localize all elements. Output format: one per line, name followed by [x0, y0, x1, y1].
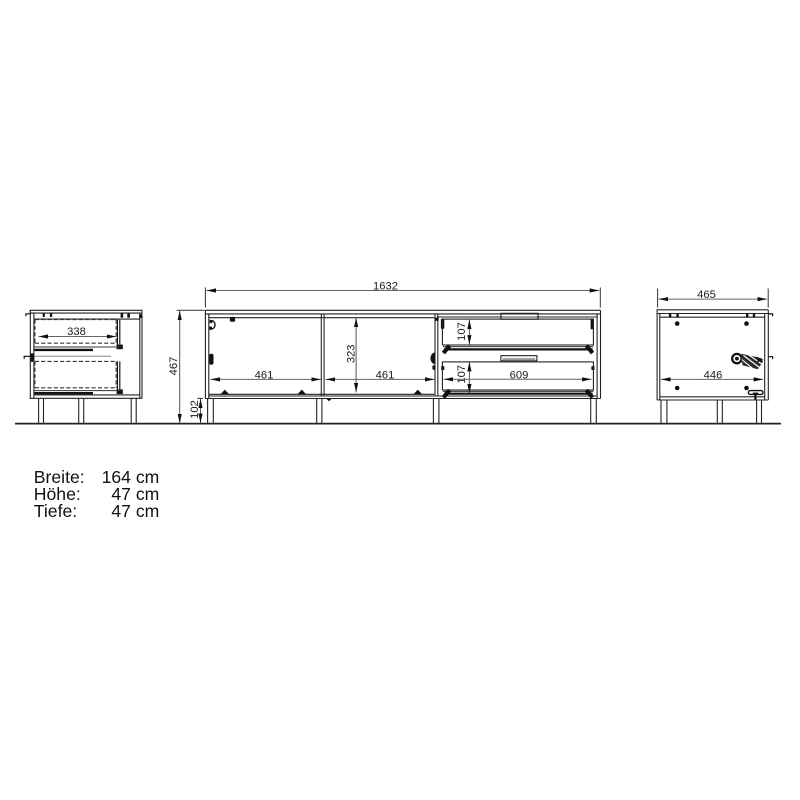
svg-text:338: 338	[67, 326, 86, 338]
svg-text:1632: 1632	[373, 281, 398, 293]
svg-text:107: 107	[456, 322, 468, 341]
svg-text:107: 107	[456, 365, 468, 384]
svg-text:461: 461	[376, 369, 395, 381]
svg-text:467: 467	[168, 357, 180, 376]
svg-text:461: 461	[255, 369, 274, 381]
svg-text:47 cm: 47 cm	[111, 501, 159, 521]
svg-text:465: 465	[697, 289, 716, 301]
svg-text:102: 102	[189, 400, 201, 419]
svg-text:Tiefe:: Tiefe:	[34, 501, 77, 521]
svg-text:446: 446	[704, 369, 723, 381]
svg-text:609: 609	[510, 369, 529, 381]
svg-text:323: 323	[345, 344, 357, 363]
